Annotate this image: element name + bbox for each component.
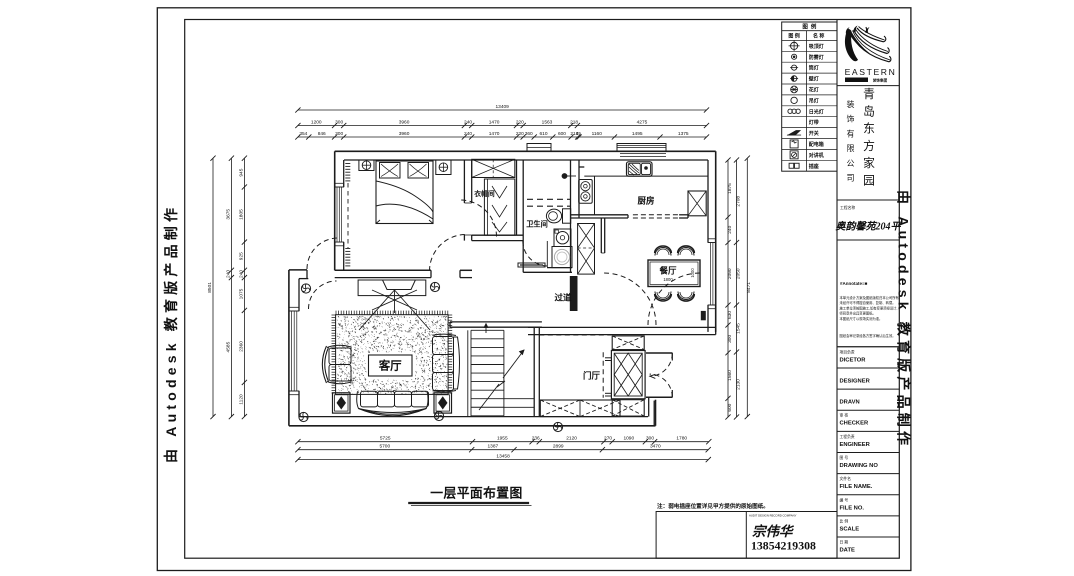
- svg-text:2360: 2360: [238, 341, 244, 352]
- svg-text:东: 东: [863, 122, 875, 136]
- svg-text:门厅: 门厅: [583, 371, 601, 381]
- svg-text:300: 300: [646, 436, 654, 442]
- svg-text:青: 青: [863, 87, 875, 101]
- svg-text:本单元设计方案及图纸版权归本公司所有,: 本单元设计方案及图纸版权归本公司所有,: [840, 295, 900, 300]
- svg-text:1375: 1375: [678, 131, 689, 137]
- svg-text:240: 240: [238, 270, 244, 278]
- svg-text:DICETOR: DICETOR: [840, 357, 867, 363]
- svg-text:2120: 2120: [566, 436, 577, 442]
- svg-text:1805: 1805: [238, 209, 244, 220]
- svg-text:3960: 3960: [399, 131, 410, 137]
- svg-text:240: 240: [464, 131, 472, 137]
- svg-text:有: 有: [847, 128, 855, 138]
- svg-text:CHECKER: CHECKER: [840, 421, 869, 427]
- svg-text:1470: 1470: [489, 131, 500, 137]
- svg-text:846: 846: [318, 131, 326, 137]
- svg-text:EASTERN: EASTERN: [845, 67, 897, 77]
- svg-text:方: 方: [863, 139, 875, 153]
- svg-text:354: 354: [299, 131, 307, 137]
- svg-text:一层平面布置图: 一层平面布置图: [430, 486, 522, 501]
- svg-text:图 例: 图 例: [788, 33, 799, 40]
- svg-text:4275: 4275: [637, 120, 648, 126]
- svg-text:1560: 1560: [727, 370, 733, 381]
- svg-text:图 例: 图 例: [802, 23, 817, 31]
- svg-text:图 号: 图 号: [840, 455, 849, 460]
- svg-text:审 核: 审 核: [840, 413, 849, 418]
- svg-text:园: 园: [863, 174, 875, 188]
- svg-text:1495: 1495: [632, 131, 643, 137]
- svg-text:300: 300: [727, 335, 733, 343]
- svg-text:2090: 2090: [727, 268, 733, 279]
- svg-text:图纸会审记录经各方签字确认后生效。: 图纸会审记录经各方签字确认后生效。: [840, 333, 896, 338]
- svg-text:开关: 开关: [809, 130, 819, 137]
- svg-text:编 号: 编 号: [840, 497, 849, 502]
- svg-text:4585: 4585: [225, 341, 231, 352]
- svg-text:插座: 插座: [809, 163, 819, 170]
- svg-text:DRAVN: DRAVN: [840, 400, 860, 406]
- svg-text:1545: 1545: [735, 323, 741, 334]
- svg-text:2708: 2708: [735, 196, 741, 207]
- svg-text:1470: 1470: [489, 120, 500, 126]
- svg-text:1075: 1075: [238, 288, 244, 299]
- svg-text:1000: 1000: [690, 268, 695, 278]
- svg-text:600: 600: [727, 403, 733, 411]
- svg-text:240: 240: [225, 270, 231, 278]
- svg-text:8471: 8471: [746, 282, 752, 293]
- svg-text:由 Autodesk 教育版产品制作: 由 Autodesk 教育版产品制作: [163, 204, 179, 463]
- svg-text:945: 945: [238, 168, 244, 176]
- svg-text:施工单位须按图施工,如有变更须经设计,: 施工单位须按图施工,如有变更须经设计,: [840, 305, 898, 310]
- svg-text:客厅: 客厅: [378, 359, 402, 373]
- svg-text:FILE NAME.: FILE NAME.: [840, 484, 873, 490]
- svg-text:1563: 1563: [542, 120, 553, 126]
- svg-text:AUDIT DESIGN RECORD COMPANY: AUDIT DESIGN RECORD COMPANY: [749, 514, 797, 518]
- svg-text:220: 220: [516, 120, 524, 126]
- svg-text:2130: 2130: [735, 379, 741, 390]
- svg-text:3470: 3470: [650, 444, 661, 450]
- svg-text:1875: 1875: [727, 183, 733, 194]
- svg-text:配电箱: 配电箱: [809, 141, 824, 148]
- svg-text:日光灯: 日光灯: [809, 108, 824, 115]
- svg-text:270: 270: [604, 436, 612, 442]
- svg-text:2899: 2899: [553, 444, 564, 450]
- svg-text:工程名称: 工程名称: [840, 205, 855, 210]
- svg-text:师同意并出具变更图纸。: 师同意并出具变更图纸。: [840, 311, 876, 316]
- svg-text:220: 220: [516, 131, 524, 137]
- svg-text:饰: 饰: [847, 114, 855, 124]
- svg-text:DRAWING NO: DRAWING NO: [840, 463, 879, 469]
- svg-text:3960: 3960: [399, 120, 410, 126]
- svg-text:1955: 1955: [497, 436, 508, 442]
- svg-text:1800: 1800: [663, 277, 673, 282]
- svg-text:610: 610: [539, 131, 547, 137]
- svg-text:#Annotate≡■: #Annotate≡■: [840, 281, 868, 286]
- svg-text:218: 218: [570, 120, 578, 126]
- svg-text:1160: 1160: [592, 131, 603, 137]
- svg-text:本图纸尺寸以现场实测为准。: 本图纸尺寸以现场实测为准。: [840, 316, 883, 321]
- svg-text:限: 限: [847, 144, 855, 153]
- svg-text:厨房: 厨房: [637, 196, 654, 206]
- svg-text:630: 630: [727, 311, 733, 319]
- svg-text:236: 236: [532, 436, 540, 442]
- svg-text:1090: 1090: [623, 436, 634, 442]
- svg-text:奥韵馨苑204平: 奥韵馨苑204平: [835, 221, 903, 233]
- svg-text:装饰集团: 装饰集团: [872, 78, 888, 83]
- svg-text:240: 240: [464, 120, 472, 126]
- svg-text:防雾灯: 防雾灯: [809, 54, 824, 61]
- svg-text:衣帽间: 衣帽间: [474, 189, 495, 198]
- svg-text:家: 家: [863, 156, 875, 170]
- svg-text:司: 司: [847, 174, 855, 183]
- svg-text:360: 360: [525, 131, 533, 137]
- svg-text:5725: 5725: [380, 436, 391, 442]
- svg-text:餐厅: 餐厅: [658, 266, 677, 276]
- svg-text:45: 45: [576, 131, 582, 137]
- svg-text:1780: 1780: [676, 436, 687, 442]
- svg-text:吸顶灯: 吸顶灯: [809, 43, 824, 50]
- svg-text:过道: 过道: [554, 293, 572, 303]
- svg-text:未经许可不得擅自使用、复制、转载。: 未经许可不得擅自使用、复制、转载。: [840, 300, 896, 305]
- svg-text:1200: 1200: [311, 120, 322, 126]
- svg-text:工程负责: 工程负责: [840, 434, 855, 439]
- svg-text:FILE NO.: FILE NO.: [840, 505, 865, 511]
- svg-text:925: 925: [238, 252, 244, 260]
- svg-text:名 称: 名 称: [813, 33, 824, 40]
- svg-text:8501: 8501: [207, 282, 213, 293]
- svg-text:卫生间: 卫生间: [526, 220, 548, 229]
- svg-text:日 期: 日 期: [840, 540, 849, 545]
- svg-text:岛: 岛: [863, 104, 875, 118]
- svg-text:DESIGNER: DESIGNER: [840, 378, 871, 384]
- svg-text:1387: 1387: [488, 444, 499, 450]
- svg-text:2050: 2050: [735, 268, 741, 279]
- svg-text:吊灯: 吊灯: [809, 97, 819, 104]
- svg-text:ENGINEER: ENGINEER: [840, 442, 871, 448]
- svg-text:筒灯: 筒灯: [809, 65, 819, 72]
- svg-text:1120: 1120: [238, 394, 244, 405]
- svg-text:公: 公: [847, 159, 855, 168]
- svg-text:13854219308: 13854219308: [751, 539, 816, 553]
- svg-text:比 例: 比 例: [840, 518, 849, 523]
- svg-text:灯带: 灯带: [809, 119, 819, 126]
- svg-text:装: 装: [847, 99, 855, 109]
- svg-text:3675: 3675: [225, 209, 231, 220]
- svg-text:项目负责: 项目负责: [840, 349, 855, 354]
- svg-text:花灯: 花灯: [809, 87, 819, 94]
- svg-text:SCALE: SCALE: [840, 526, 860, 532]
- svg-text:注：弱电插座位置详见甲方提供的原始图纸。: 注：弱电插座位置详见甲方提供的原始图纸。: [657, 502, 769, 510]
- svg-text:对讲机: 对讲机: [809, 152, 824, 159]
- svg-text:300: 300: [335, 120, 343, 126]
- svg-text:13409: 13409: [496, 104, 510, 110]
- svg-text:600: 600: [558, 131, 566, 137]
- svg-text:5700: 5700: [379, 444, 390, 450]
- svg-text:文件名: 文件名: [840, 476, 852, 481]
- svg-text:宗伟华: 宗伟华: [752, 524, 795, 539]
- svg-text:13458: 13458: [496, 454, 510, 460]
- svg-text:300: 300: [335, 131, 343, 137]
- svg-text:壁灯: 壁灯: [808, 76, 819, 83]
- svg-text:240: 240: [727, 225, 733, 233]
- svg-text:DATE: DATE: [840, 548, 855, 554]
